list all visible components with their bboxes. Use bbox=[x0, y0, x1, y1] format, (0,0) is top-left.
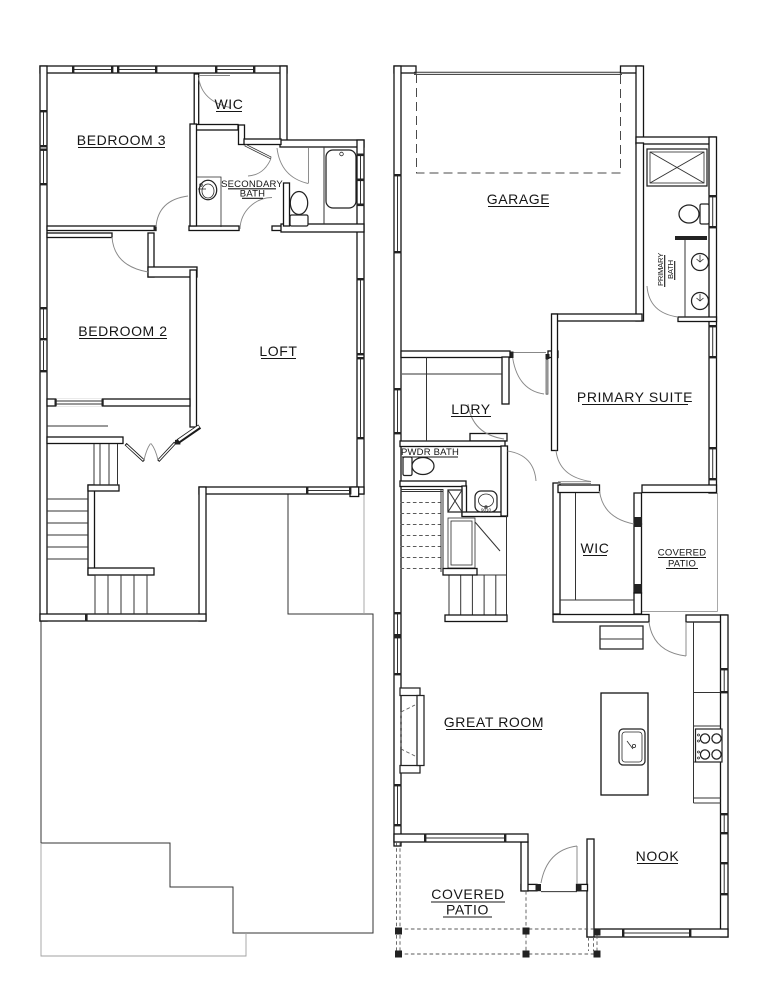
svg-text:GARAGE: GARAGE bbox=[487, 191, 551, 207]
svg-text:WIC: WIC bbox=[580, 540, 609, 556]
svg-text:PRIMARY SUITE: PRIMARY SUITE bbox=[577, 389, 693, 405]
svg-text:9010: 9010 bbox=[481, 508, 492, 513]
svg-text:PRIMARY: PRIMARY bbox=[656, 253, 665, 286]
svg-text:LDRY: LDRY bbox=[451, 401, 491, 417]
svg-text:PATIO: PATIO bbox=[446, 902, 489, 918]
svg-text:COVERED: COVERED bbox=[658, 548, 706, 559]
svg-text:BEDROOM 2: BEDROOM 2 bbox=[78, 323, 167, 339]
svg-text:PWDR BATH: PWDR BATH bbox=[401, 447, 459, 458]
svg-text:BATH: BATH bbox=[666, 260, 675, 279]
svg-text:COVERED: COVERED bbox=[431, 886, 504, 902]
svg-text:GREAT ROOM: GREAT ROOM bbox=[444, 714, 544, 730]
svg-text:BEDROOM 3: BEDROOM 3 bbox=[77, 132, 166, 148]
svg-text:WIC: WIC bbox=[214, 96, 243, 112]
svg-text:PATIO: PATIO bbox=[668, 559, 696, 570]
svg-text:LOFT: LOFT bbox=[259, 343, 297, 359]
svg-text:NOOK: NOOK bbox=[636, 848, 680, 864]
